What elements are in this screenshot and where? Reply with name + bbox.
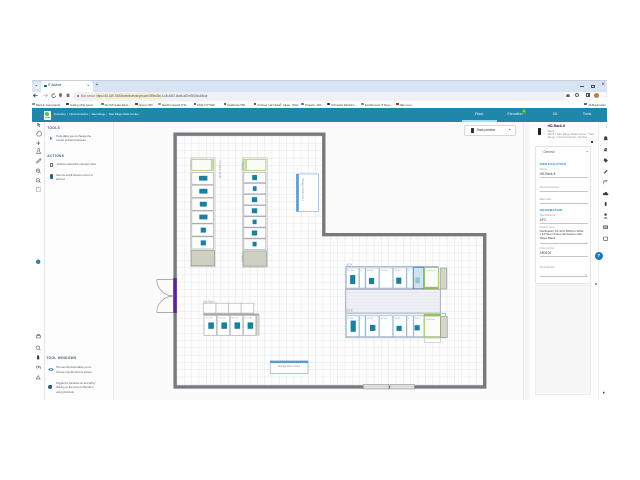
svg-text:05f Rkr: 05f Rkr <box>347 317 354 320</box>
svg-text:Strn Rkr: Strn Rkr <box>205 317 213 320</box>
svg-text:⋮: ⋮ <box>604 124 609 129</box>
svg-text:L Panel 1: L Panel 1 <box>240 161 243 172</box>
svg-text:05f Strn: 05f Strn <box>380 317 388 320</box>
svg-text:HD A: HD A <box>346 264 352 267</box>
svg-text:Strn Rkr: Strn Rkr <box>231 317 239 320</box>
svg-text:HD Panel 1A-08: HD Panel 1A-08 <box>218 161 221 179</box>
svg-text:Cool Rspr: Cool Rspr <box>425 269 435 272</box>
svg-text:05f Rkr: 05f Rkr <box>366 317 373 320</box>
svg-text:HD B: HD B <box>346 310 352 313</box>
svg-text:Strn Rkr: Strn Rkr <box>244 317 252 320</box>
svg-text:L Panel 2: L Panel 2 <box>240 253 243 264</box>
svg-text:Storage Room Unit 1: Storage Room Unit 1 <box>301 179 304 202</box>
svg-text:Storage Room Unit 4: Storage Room Unit 4 <box>278 365 301 368</box>
svg-text:05f Rkr: 05f Rkr <box>366 269 373 272</box>
svg-text:Strn Rkr: Strn Rkr <box>218 317 226 320</box>
svg-text:05f Rkr: 05f Rkr <box>394 269 401 272</box>
svg-text:Cool Rspr: Cool Rspr <box>425 318 435 321</box>
svg-text:05f Strn: 05f Strn <box>380 269 388 272</box>
svg-text:05f Rkr: 05f Rkr <box>347 269 354 272</box>
svg-text:05f Rkr: 05f Rkr <box>394 317 401 320</box>
svg-text:05f R: 05f R <box>415 318 420 320</box>
